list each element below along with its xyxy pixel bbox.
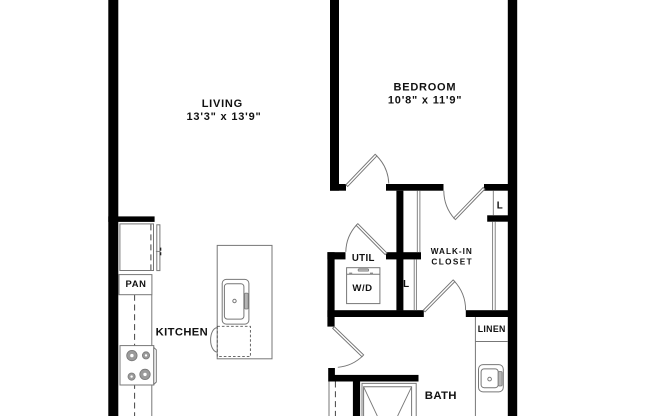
svg-text:PAN: PAN	[126, 278, 147, 289]
svg-text:LIVING: LIVING	[202, 98, 243, 110]
svg-text:CLOSET: CLOSET	[431, 258, 473, 267]
svg-text:BATH: BATH	[425, 390, 457, 402]
svg-text:LINEN: LINEN	[478, 324, 506, 334]
svg-text:BEDROOM: BEDROOM	[394, 81, 457, 93]
svg-text:KITCHEN: KITCHEN	[156, 326, 209, 338]
svg-text:L: L	[497, 200, 503, 211]
svg-text:13'3" x 13'9": 13'3" x 13'9"	[187, 111, 262, 123]
svg-text:10'8" x 11'9": 10'8" x 11'9"	[388, 95, 462, 107]
svg-text:W/D: W/D	[352, 283, 372, 294]
svg-text:WALK-IN: WALK-IN	[431, 247, 473, 256]
svg-text:UTIL: UTIL	[352, 253, 375, 264]
svg-text:L: L	[403, 279, 409, 290]
